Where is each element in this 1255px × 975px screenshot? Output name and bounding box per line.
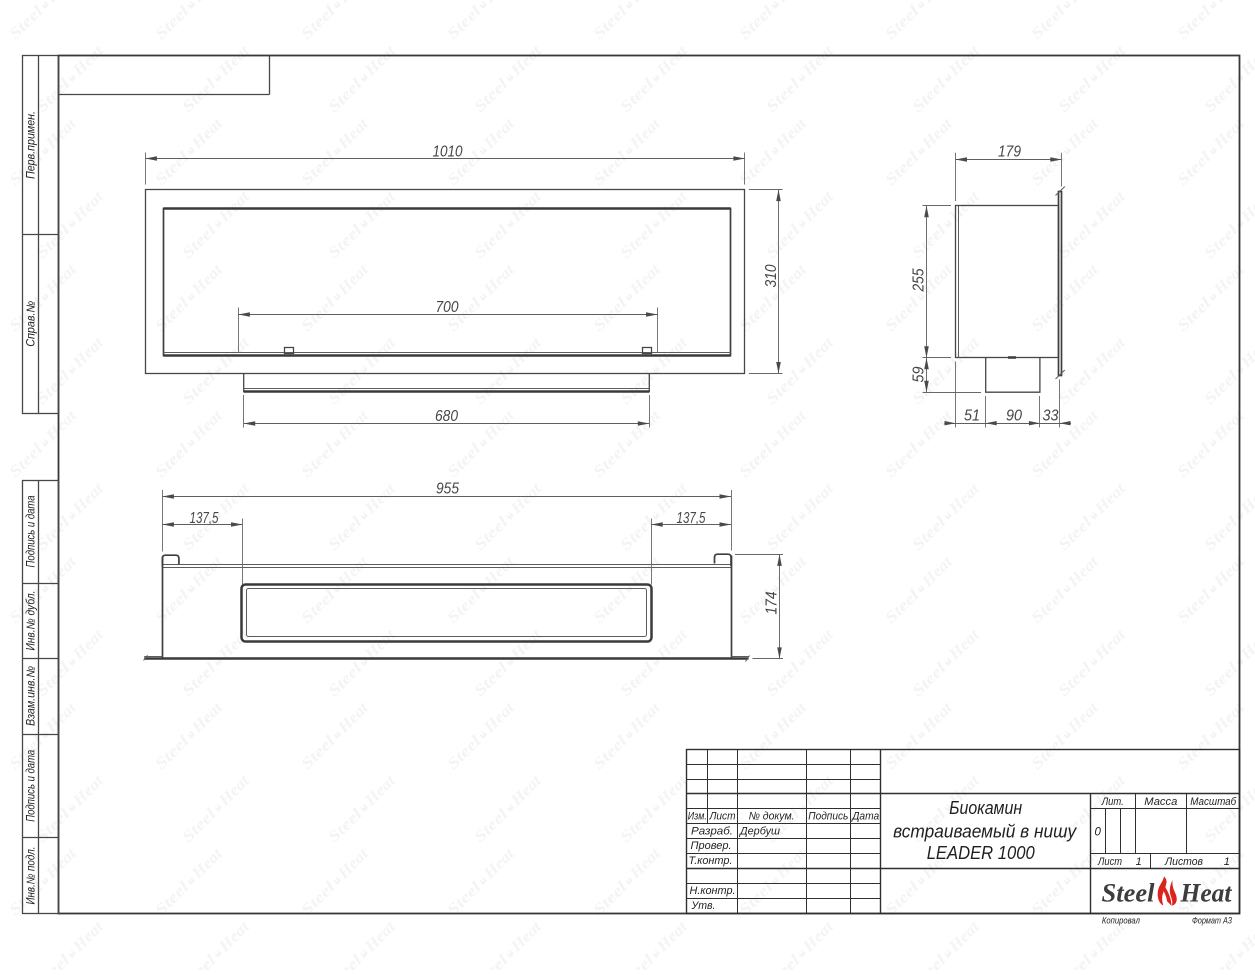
svg-text:Масштаб: Масштаб <box>1190 796 1237 808</box>
svg-text:59: 59 <box>911 366 928 382</box>
svg-text:179: 179 <box>998 144 1021 161</box>
svg-text:встраиваемый в нишу: встраиваемый в нишу <box>893 822 1077 842</box>
svg-text:LEADER 1000: LEADER 1000 <box>927 843 1035 863</box>
svg-text:№ докум.: № докум. <box>749 810 795 822</box>
svg-text:Т.контр.: Т.контр. <box>689 855 733 867</box>
svg-text:1: 1 <box>1136 856 1142 868</box>
svg-text:90: 90 <box>1006 408 1022 425</box>
svg-text:Формат А3: Формат А3 <box>1192 916 1233 927</box>
svg-text:Инв.№ дубл.: Инв.№ дубл. <box>25 591 37 651</box>
svg-text:Heat: Heat <box>1180 879 1233 908</box>
svg-text:Лит.: Лит. <box>1101 796 1124 808</box>
svg-text:1: 1 <box>1224 856 1230 868</box>
svg-text:Подпись: Подпись <box>808 810 848 822</box>
svg-text:255: 255 <box>911 268 928 292</box>
svg-text:1010: 1010 <box>433 143 463 160</box>
svg-text:51: 51 <box>964 408 980 425</box>
svg-text:0: 0 <box>1094 827 1101 839</box>
svg-text:Перв.примен.: Перв.примен. <box>25 111 37 179</box>
svg-text:Справ.№: Справ.№ <box>25 300 37 347</box>
svg-text:Биокамин: Биокамин <box>949 798 1022 818</box>
svg-text:Подпись и дата: Подпись и дата <box>25 750 37 822</box>
svg-text:Изм.: Изм. <box>688 810 707 822</box>
svg-text:Лист: Лист <box>709 810 736 822</box>
svg-text:137,5: 137,5 <box>190 510 219 527</box>
svg-text:Инв.№ подл.: Инв.№ подл. <box>25 847 37 905</box>
svg-text:Дербуш: Дербуш <box>738 825 780 837</box>
svg-text:Подпись и дата: Подпись и дата <box>25 496 37 568</box>
svg-text:137,5: 137,5 <box>677 510 706 527</box>
svg-text:Н.контр.: Н.контр. <box>690 885 736 897</box>
svg-text:Лист: Лист <box>1097 856 1122 868</box>
svg-text:174: 174 <box>763 591 780 614</box>
svg-text:Разраб.: Разраб. <box>691 825 733 837</box>
svg-text:Масса: Масса <box>1144 796 1177 808</box>
svg-text:955: 955 <box>436 481 459 498</box>
svg-text:Steel: Steel <box>1102 879 1156 908</box>
svg-text:Дата: Дата <box>850 810 879 822</box>
svg-text:Утв.: Утв. <box>691 900 716 912</box>
svg-text:700: 700 <box>436 299 459 316</box>
svg-text:680: 680 <box>435 408 458 425</box>
svg-text:33: 33 <box>1043 408 1059 425</box>
svg-text:310: 310 <box>763 264 780 287</box>
svg-text:Взам.инв.№: Взам.инв.№ <box>25 666 37 726</box>
svg-text:Провер.: Провер. <box>691 840 732 852</box>
svg-text:Листов: Листов <box>1164 856 1203 868</box>
svg-text:Копировал: Копировал <box>1102 916 1141 927</box>
